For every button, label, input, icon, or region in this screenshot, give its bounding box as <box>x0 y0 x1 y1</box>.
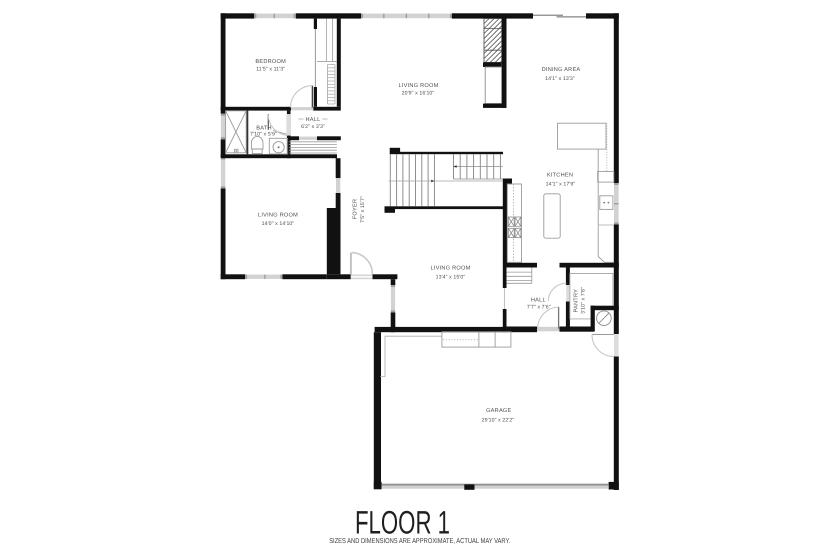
svg-text:PANTRY: PANTRY <box>574 289 580 313</box>
svg-text:FLOOR 1: FLOOR 1 <box>355 505 450 541</box>
svg-text:14'1" x 17'9": 14'1" x 17'9" <box>546 182 576 188</box>
svg-text:20'9" x 16'10": 20'9" x 16'10" <box>402 91 435 97</box>
svg-text:KITCHEN: KITCHEN <box>547 172 573 178</box>
svg-text:7'7" x 7'6": 7'7" x 7'6" <box>527 305 551 311</box>
svg-text:LIVING ROOM: LIVING ROOM <box>258 213 298 219</box>
svg-text:LIVING ROOM: LIVING ROOM <box>398 83 438 89</box>
svg-text:13'4" x 15'0": 13'4" x 15'0" <box>436 275 466 281</box>
svg-text:29'10" x 22'2": 29'10" x 22'2" <box>482 418 515 424</box>
svg-text:HALL: HALL <box>531 298 546 304</box>
svg-text:HALL: HALL <box>306 117 321 123</box>
svg-text:LIVING ROOM: LIVING ROOM <box>430 266 470 272</box>
svg-text:3'10" x 7'8": 3'10" x 7'8" <box>581 287 587 314</box>
svg-text:GARAGE: GARAGE <box>486 408 511 414</box>
svg-text:11'5" x 11'3": 11'5" x 11'3" <box>256 66 285 72</box>
svg-text:SIZES AND DIMENSIONS ARE APPRO: SIZES AND DIMENSIONS ARE APPROXIMATE, AC… <box>329 537 510 545</box>
svg-text:BEDROOM: BEDROOM <box>255 59 286 65</box>
svg-text:7'5" x 15'7": 7'5" x 15'7" <box>360 196 366 223</box>
svg-text:14'0" x 14'10": 14'0" x 14'10" <box>262 221 295 227</box>
svg-text:6'2" x 3'3": 6'2" x 3'3" <box>301 124 325 130</box>
svg-text:14'1" x 13'3": 14'1" x 13'3" <box>545 76 575 82</box>
svg-text:DINING AREA: DINING AREA <box>542 67 581 73</box>
svg-text:FOYER: FOYER <box>353 199 359 220</box>
svg-text:7'10" x 5'9": 7'10" x 5'9" <box>250 131 277 137</box>
